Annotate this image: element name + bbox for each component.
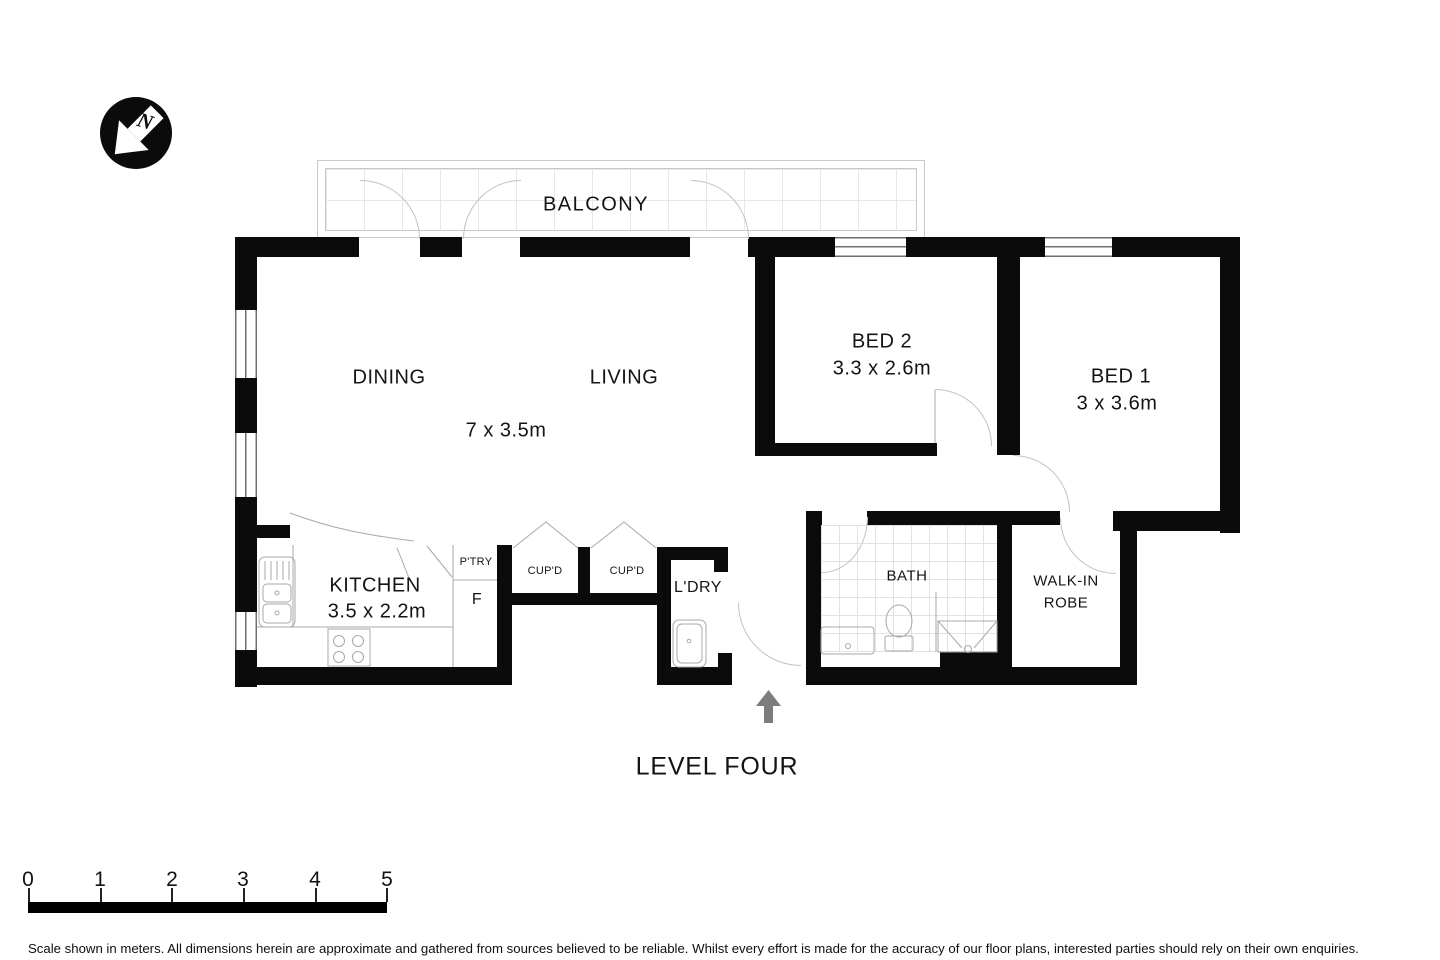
fridge-label: F bbox=[472, 591, 482, 609]
level-label: LEVEL FOUR bbox=[636, 753, 799, 782]
wall bbox=[235, 237, 257, 310]
scale-tick bbox=[171, 888, 173, 902]
floor-plan-page: N BALCONY bbox=[0, 0, 1440, 960]
window bbox=[1045, 237, 1112, 257]
wall bbox=[520, 237, 690, 257]
disclaimer-text: Scale shown in meters. All dimensions he… bbox=[28, 941, 1359, 956]
wall bbox=[748, 237, 835, 257]
dining-label: DINING bbox=[353, 367, 426, 390]
bed1-label: BED 1 bbox=[1091, 366, 1151, 389]
cupboard-right-label: CUP'D bbox=[610, 565, 645, 577]
window bbox=[235, 310, 257, 378]
north-compass: N bbox=[99, 96, 173, 170]
wall bbox=[718, 653, 732, 667]
wall bbox=[757, 443, 937, 456]
laundry-tub-icon bbox=[673, 620, 706, 667]
door-swing bbox=[1060, 518, 1116, 574]
pantry-label: P'TRY bbox=[460, 556, 493, 568]
wall bbox=[235, 667, 512, 685]
laundry-label: L'DRY bbox=[674, 579, 722, 597]
kitchen-label: KITCHEN bbox=[329, 575, 420, 598]
wall bbox=[1120, 525, 1137, 685]
scale-tick bbox=[100, 888, 102, 902]
wall bbox=[657, 667, 732, 685]
bed2-dimensions: 3.3 x 2.6m bbox=[833, 358, 931, 381]
wall bbox=[1220, 237, 1240, 533]
wall bbox=[714, 547, 728, 572]
window bbox=[835, 237, 906, 257]
living-label: LIVING bbox=[590, 367, 659, 390]
walk-in-robe-label: WALK-IN ROBE bbox=[1020, 570, 1112, 614]
wall bbox=[755, 257, 775, 456]
door-swing bbox=[1013, 455, 1070, 512]
window bbox=[235, 612, 257, 650]
living-dimensions: 7 x 3.5m bbox=[466, 420, 547, 443]
wall bbox=[420, 237, 462, 257]
wall bbox=[806, 667, 1137, 685]
bath-label: BATH bbox=[887, 568, 928, 585]
cupboard-left-label: CUP'D bbox=[528, 565, 563, 577]
window bbox=[235, 433, 257, 497]
north-arrow-icon bbox=[100, 97, 172, 169]
door-swing bbox=[738, 603, 801, 666]
scale-tick bbox=[386, 888, 388, 902]
compass-n-label: N bbox=[133, 107, 157, 135]
wall bbox=[257, 525, 290, 538]
wall bbox=[657, 547, 671, 682]
balcony-label: BALCONY bbox=[543, 194, 649, 217]
door-swing bbox=[935, 389, 992, 446]
entry-arrow-icon bbox=[756, 690, 781, 723]
bed2-label: BED 2 bbox=[852, 331, 912, 354]
scale-tick bbox=[243, 888, 245, 902]
wall bbox=[867, 511, 1008, 525]
kitchen-dimensions: 3.5 x 2.2m bbox=[328, 601, 426, 624]
wall bbox=[940, 652, 1005, 667]
wall bbox=[497, 593, 670, 605]
wall bbox=[235, 497, 257, 612]
scale-bar-rect bbox=[28, 902, 387, 913]
stove-icon bbox=[328, 629, 370, 666]
wall bbox=[997, 257, 1020, 455]
cupboard-door-lines bbox=[513, 522, 656, 548]
scale-tick bbox=[28, 888, 30, 902]
bed1-dimensions: 3 x 3.6m bbox=[1077, 393, 1158, 416]
wall bbox=[1008, 511, 1060, 525]
compass-circle bbox=[100, 97, 172, 169]
wall bbox=[578, 547, 590, 593]
wall bbox=[906, 237, 1045, 257]
wall bbox=[497, 545, 512, 685]
kitchen-sink-icon bbox=[259, 557, 295, 627]
scale-tick bbox=[315, 888, 317, 902]
wall bbox=[806, 511, 821, 685]
wall bbox=[235, 378, 257, 433]
